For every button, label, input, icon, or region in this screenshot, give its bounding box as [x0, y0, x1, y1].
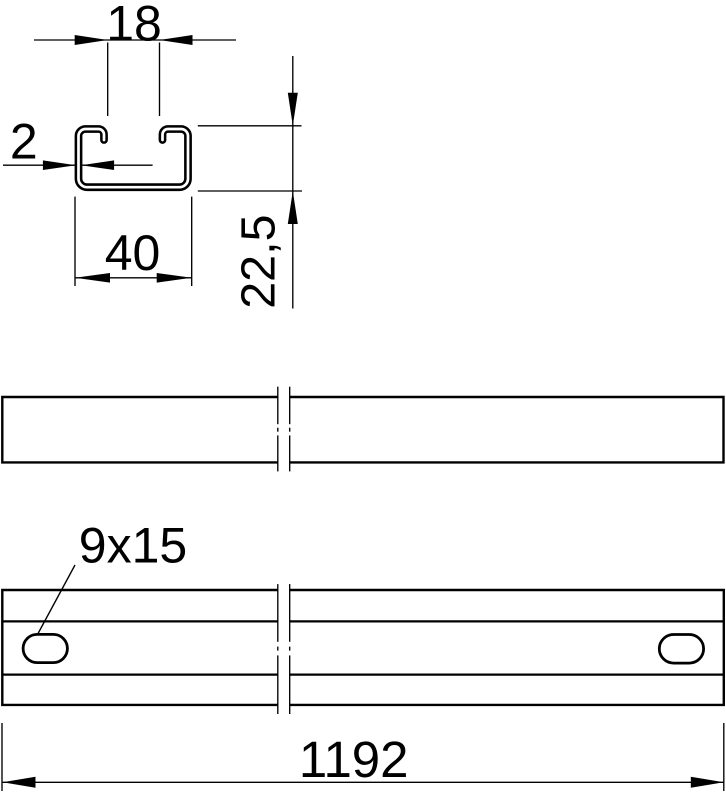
svg-text:22,5: 22,5 [232, 214, 286, 308]
svg-text:2: 2 [10, 113, 38, 169]
svg-text:18: 18 [106, 0, 162, 51]
svg-text:40: 40 [105, 225, 161, 281]
svg-text:9x15: 9x15 [79, 518, 187, 574]
svg-text:1192: 1192 [299, 731, 409, 788]
